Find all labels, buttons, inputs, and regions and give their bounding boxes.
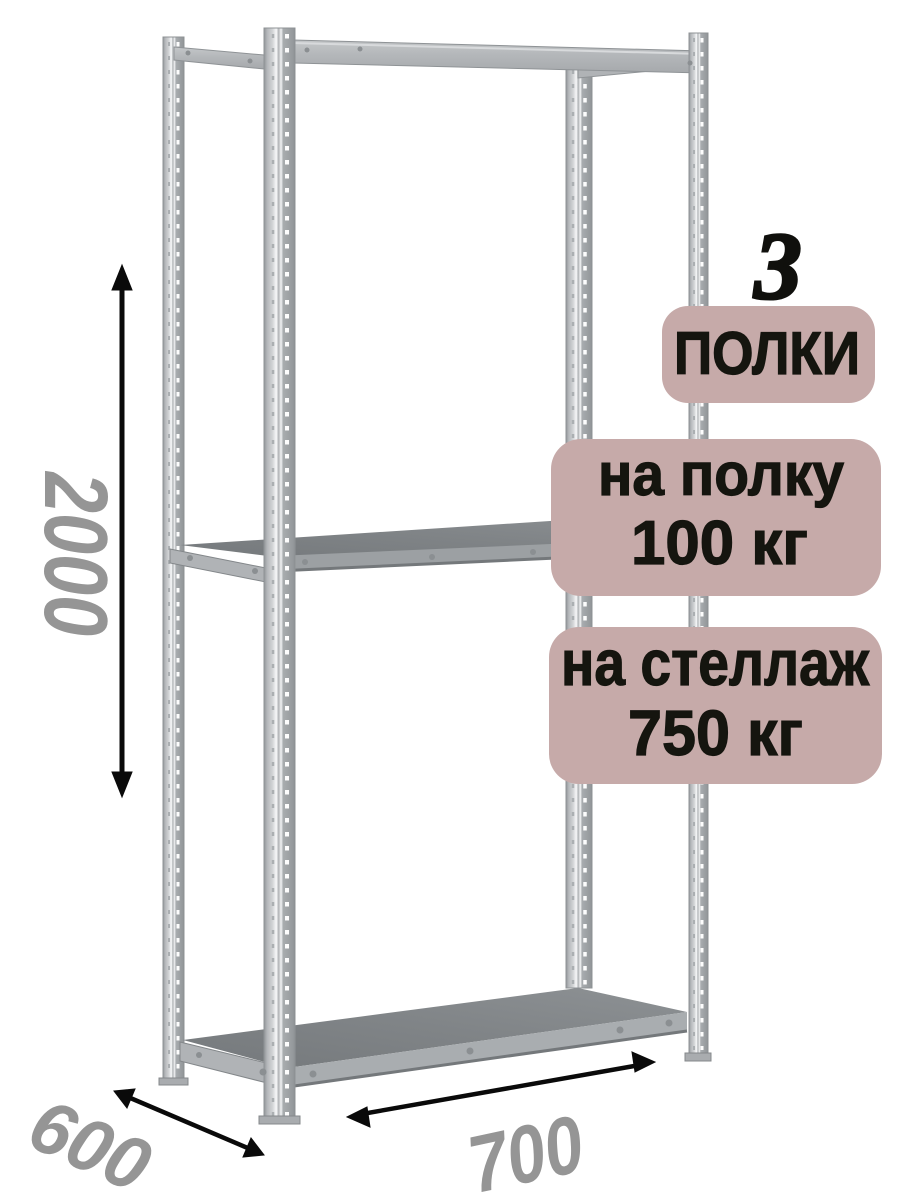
svg-text:750 кг: 750 кг bbox=[628, 697, 803, 769]
svg-text:на полку: на полку bbox=[598, 441, 845, 508]
svg-text:2000: 2000 bbox=[25, 470, 125, 636]
svg-text:3: 3 bbox=[753, 213, 802, 319]
svg-text:ПОЛКИ: ПОЛКИ bbox=[674, 320, 860, 387]
svg-text:100 кг: 100 кг bbox=[631, 509, 808, 578]
svg-text:700: 700 bbox=[461, 1099, 591, 1200]
svg-text:на стеллаж: на стеллаж bbox=[561, 627, 870, 699]
svg-text:600: 600 bbox=[17, 1082, 163, 1200]
